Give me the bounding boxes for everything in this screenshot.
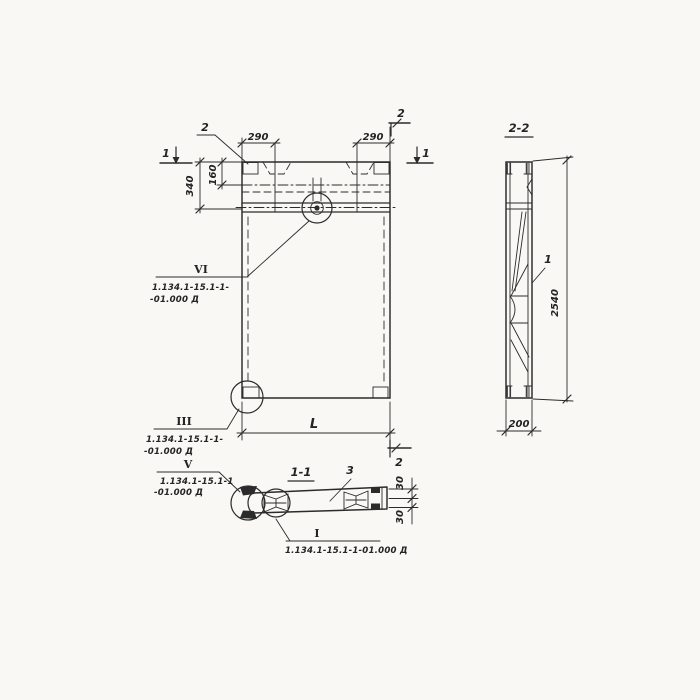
part-1-leader — [532, 268, 545, 283]
detail-v-label: V — [183, 458, 193, 471]
dim-30-top: 30 — [395, 476, 406, 490]
embed-plate-bottom-left — [243, 387, 259, 398]
detail-v-doc-line2: -01.000 Д — [154, 488, 203, 498]
right-end-plate-bottom — [371, 504, 380, 510]
cut-mark-2-bottom: 2 — [388, 440, 411, 469]
panel-outline — [242, 162, 390, 398]
ext-lines-30 — [389, 489, 418, 508]
part-1-callout: 1 — [532, 253, 552, 283]
top-recess-left — [263, 162, 291, 174]
section-2-2-view: 2-2 1 2540 200 — [497, 121, 573, 436]
lifting-loop-center — [314, 205, 319, 210]
dim-length: L — [310, 417, 318, 432]
dim-290-right: 290 — [363, 132, 384, 143]
detail-i-doc: 1.134.1-15.1-1-01.000 Д — [285, 546, 408, 556]
cut-mark-1-right: 1 — [407, 147, 433, 164]
dim-2540: 2540 — [550, 289, 561, 317]
part-3-callout: 3 — [330, 464, 354, 501]
front-view: 290 290 340 160 L 1 1 — [144, 107, 433, 469]
lifting-loop-shaft — [313, 178, 321, 201]
detail-vi-doc-line2: -01.000 Д — [150, 295, 199, 305]
detail-i-label: I — [314, 527, 319, 540]
section-2-2-title: 2-2 — [509, 121, 530, 135]
embed-callout-label: 2 — [201, 121, 209, 134]
section-1-1-view: 1-1 3 30 30 — [154, 458, 418, 556]
detail-iii-doc-line1: 1.134.1-15.1-1- — [146, 435, 224, 445]
embed-hatch-top-right — [525, 163, 530, 174]
dim-290-left: 290 — [248, 132, 269, 143]
key-pocket-bulge — [510, 296, 515, 323]
detail-v-doc-line1: 1.134.1-15.1-1 — [160, 477, 234, 487]
detail-v-callout: V 1.134.1-15.1-1 -01.000 Д — [154, 458, 240, 498]
dim-30-bottom: 30 — [395, 510, 406, 524]
part-1-label: 1 — [544, 253, 552, 266]
cut-mark-1-left: 1 — [160, 147, 192, 164]
drawing-sheet: 290 290 340 160 L 1 1 — [0, 0, 700, 700]
keyway-right — [344, 491, 368, 509]
detail-iii-label: III — [176, 415, 191, 428]
dim-200: 200 — [509, 419, 530, 430]
keyway-cross — [346, 496, 366, 504]
dim-340: 340 — [185, 176, 196, 197]
leader-i — [276, 519, 290, 541]
section-1-1-title: 1-1 — [291, 465, 312, 479]
taper-wedge — [512, 212, 526, 291]
cut-label-2: 2 — [395, 456, 403, 469]
detail-i-callout: I 1.134.1-15.1-1-01.000 Д — [276, 519, 408, 556]
detail-vi-callout: VI 1.134.1-15.1-1- -01.000 Д — [150, 221, 309, 305]
cut-mark-2-top: 2 — [389, 107, 410, 136]
detail-iii-doc-line2: -01.000 Д — [144, 447, 193, 457]
detail-vi-label: VI — [193, 263, 208, 276]
keyway-cross — [266, 499, 286, 507]
embed-plate-top-left — [243, 163, 258, 175]
detail-circle-iii — [231, 381, 263, 413]
bar-left-end-arc — [248, 493, 254, 513]
detail-iii-callout: III 1.134.1-15.1-1- -01.000 Д — [144, 409, 239, 457]
technical-drawing: 290 290 340 160 L 1 1 — [0, 0, 700, 700]
left-jaw-bottom — [240, 511, 257, 520]
leader-iii — [227, 409, 239, 429]
dim-160: 160 — [208, 165, 219, 186]
embed-hatch-bottom-left — [507, 386, 512, 397]
embed-callout-leader — [197, 135, 248, 164]
embed-callout: 2 — [197, 121, 248, 164]
cut-label-1: 1 — [162, 147, 170, 160]
embed-hatch-top-left — [507, 163, 512, 174]
embed-plate-top-right — [374, 163, 389, 175]
embed-hatch-bottom-right — [525, 386, 530, 397]
detail-vi-doc-line1: 1.134.1-15.1-1- — [152, 283, 230, 293]
right-end-plate-top — [371, 488, 380, 494]
keyway-left — [264, 494, 288, 512]
cut-label-1: 1 — [422, 147, 430, 160]
bar-outline — [254, 487, 387, 513]
leader-vi — [247, 221, 309, 277]
top-recess-right — [346, 162, 374, 174]
embed-plate-bottom-right — [373, 387, 388, 398]
part-3-label: 3 — [346, 464, 354, 477]
cut-label-2: 2 — [397, 107, 405, 120]
